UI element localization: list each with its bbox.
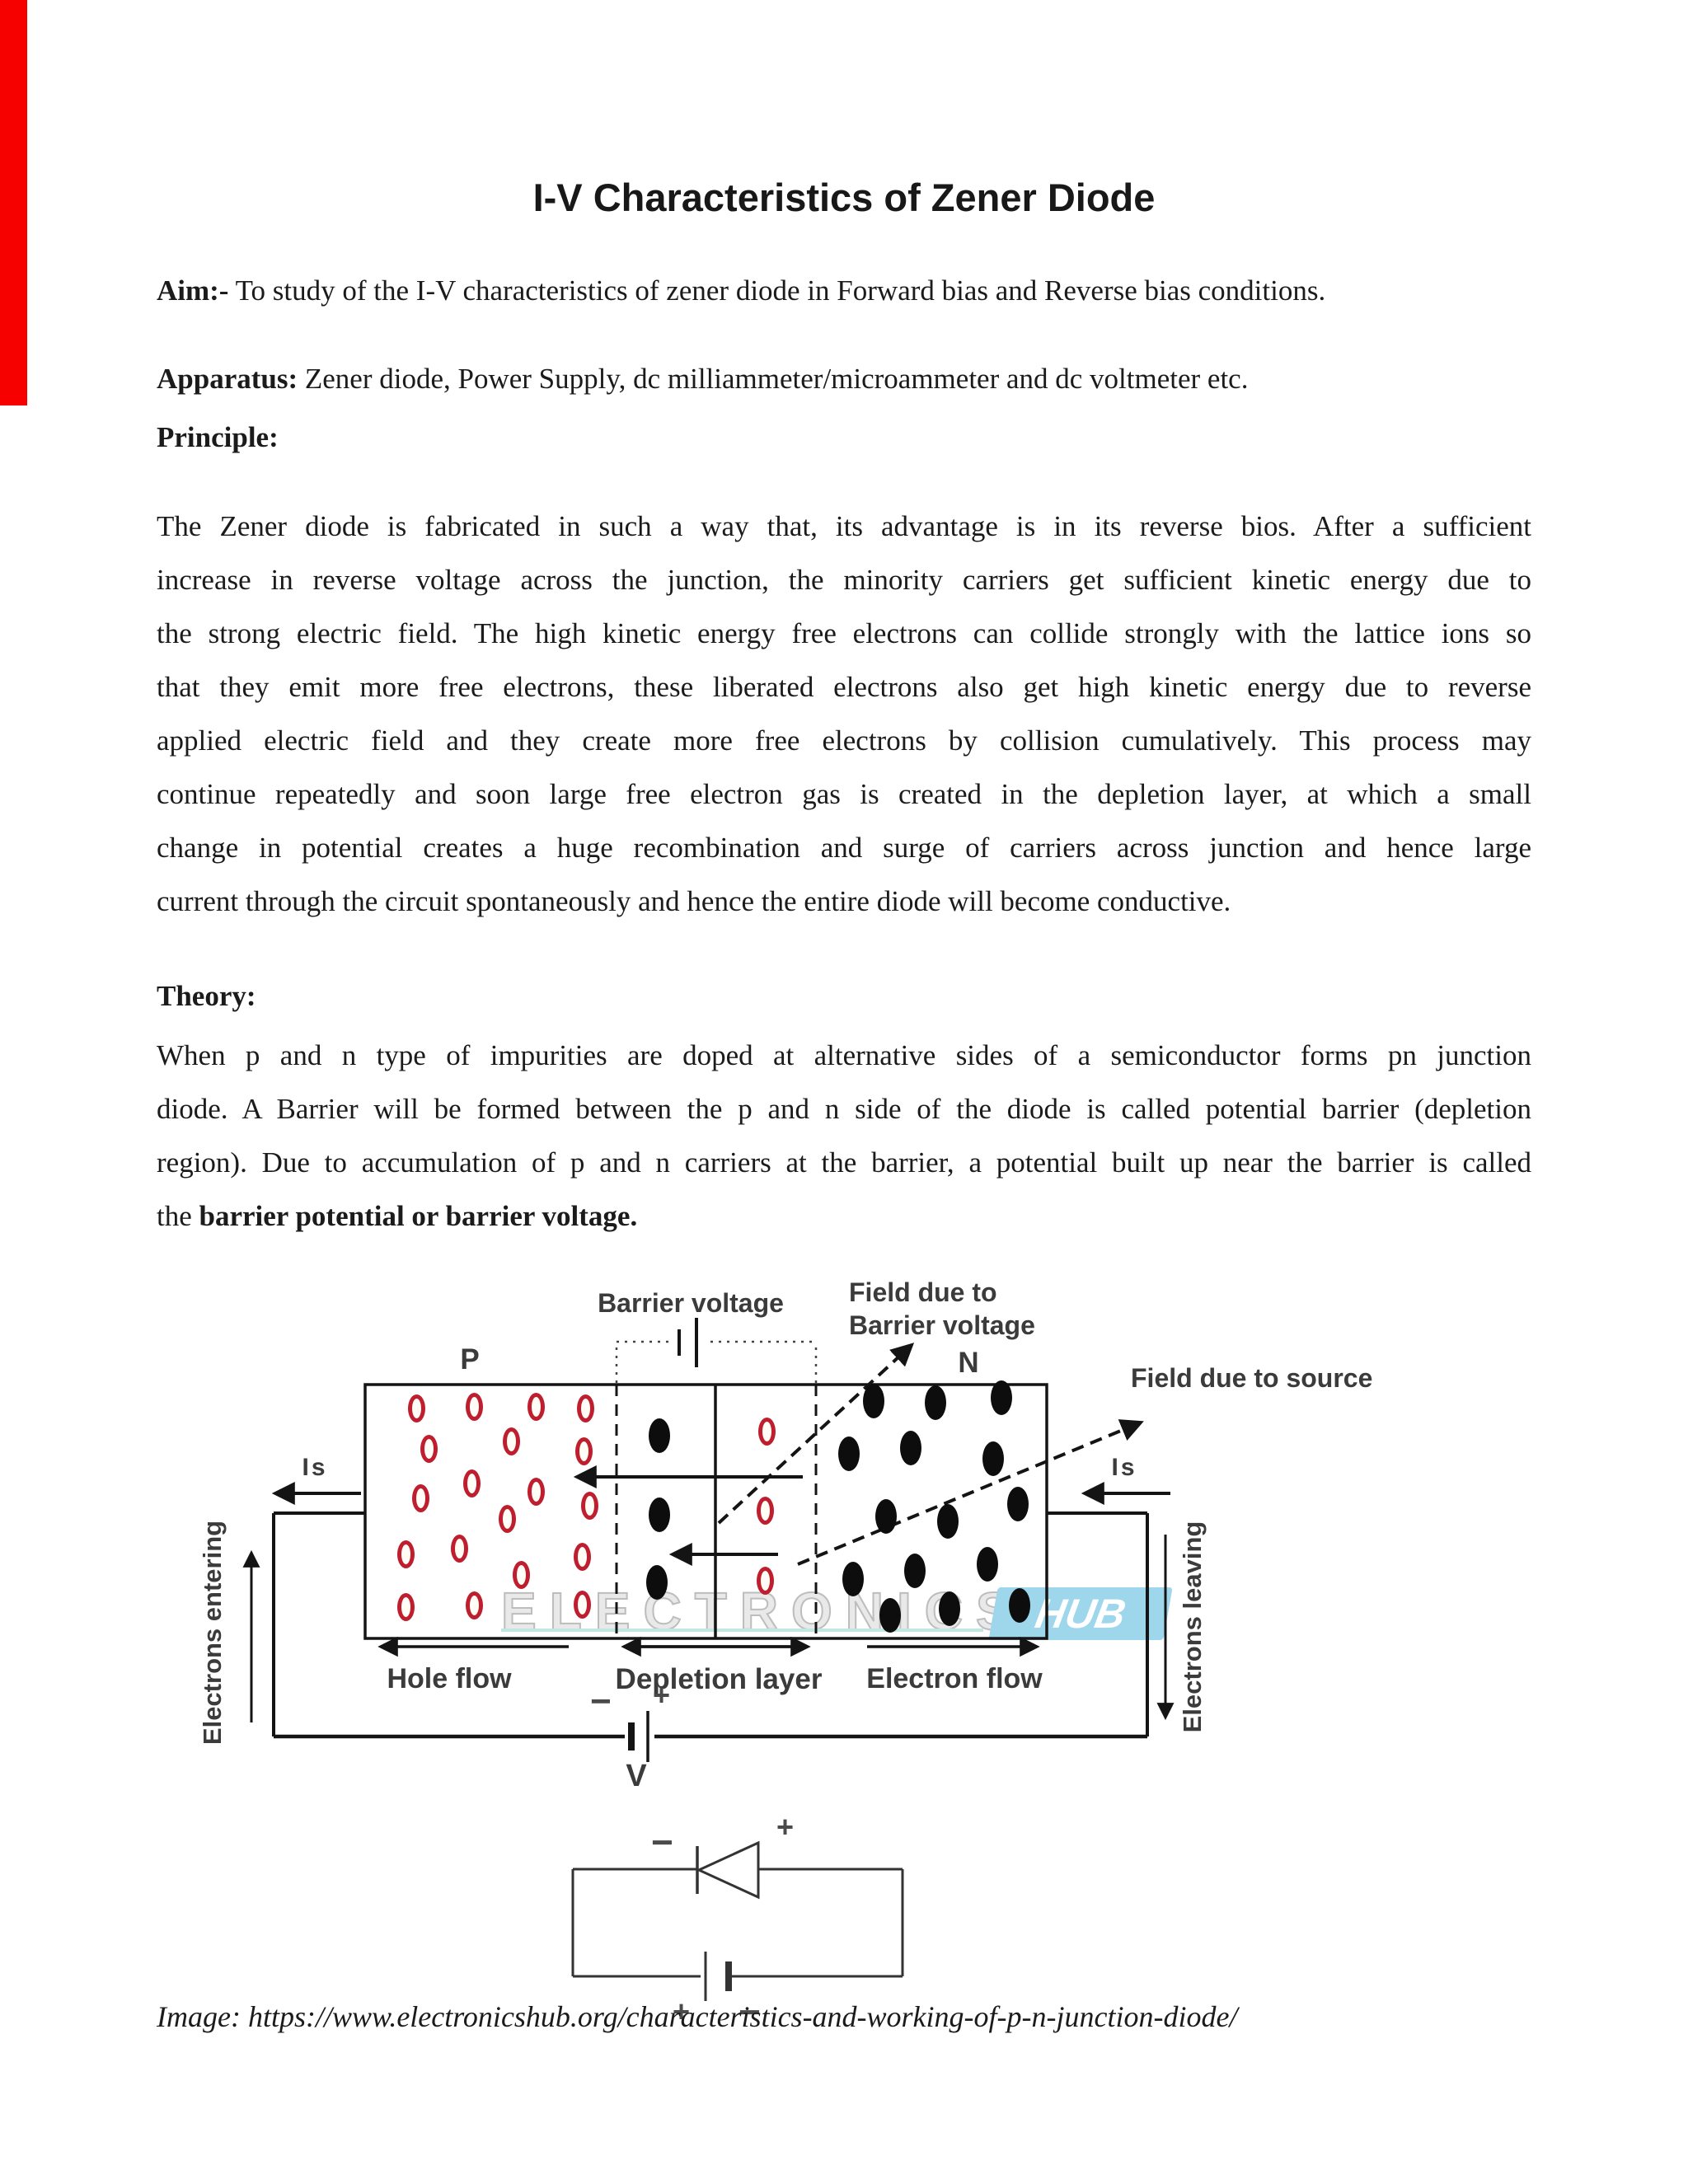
field-due-to-barrier-label-line1: Field due to (849, 1277, 997, 1308)
electrons-entering-label: Electrons entering (198, 1468, 227, 1797)
image-credit: Image: https://www.electronicshub.org/ch… (157, 1999, 1558, 2034)
diode-plus-sign: + (776, 1810, 794, 1844)
electrons-leaving-label: Electrons leaving (1178, 1462, 1207, 1792)
electron-flow-label: Electron flow (866, 1663, 1042, 1695)
n-region-label: N (958, 1347, 978, 1380)
diode-minus-sign: − (651, 1820, 673, 1864)
document-page: I-V Characteristics of Zener Diode Aim:-… (0, 0, 1688, 2184)
battery-minus-sign: − (590, 1681, 612, 1722)
hole-flow-label: Hole flow (387, 1663, 511, 1695)
barrier-voltage-label: Barrier voltage (598, 1288, 784, 1319)
p-region-label: P (460, 1343, 479, 1376)
depletion-layer-label: Depletion layer (616, 1663, 823, 1696)
source-voltage-label: V (626, 1759, 646, 1794)
diagram-linework (0, 0, 1688, 2184)
field-due-to-barrier-label-line2: Barrier voltage (849, 1310, 1035, 1341)
is-right-label: Is (1111, 1454, 1137, 1482)
battery-plus-sign: + (653, 1678, 670, 1713)
field-due-to-source-label: Field due to source (1131, 1363, 1372, 1394)
is-left-label: Is (302, 1454, 327, 1482)
